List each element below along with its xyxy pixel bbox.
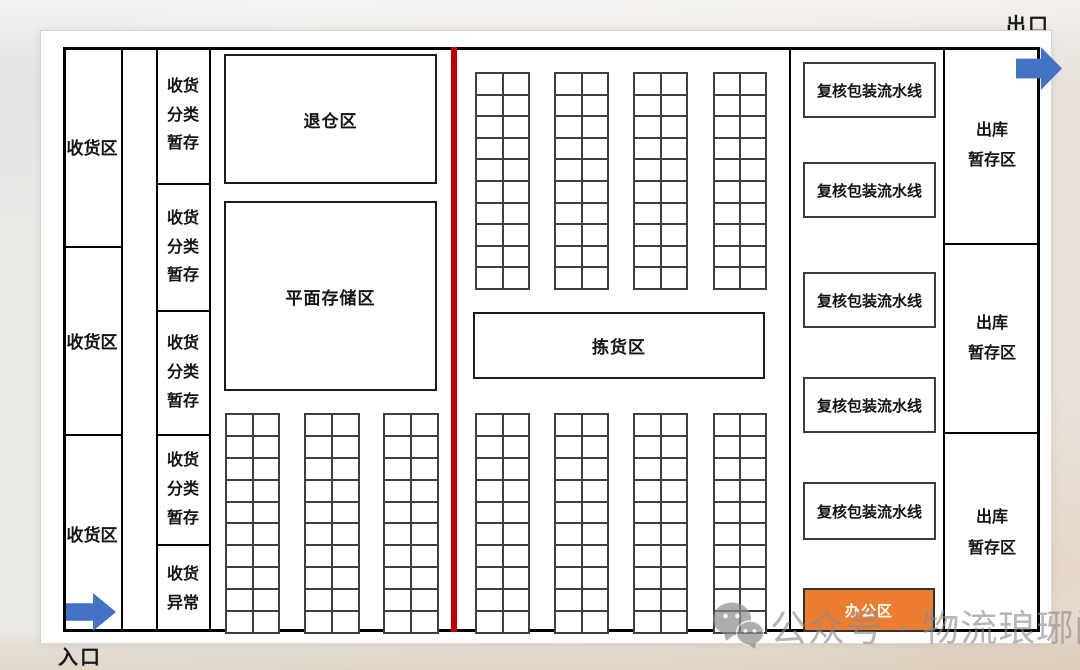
rack-cell bbox=[661, 159, 688, 181]
rack-cell bbox=[661, 203, 688, 225]
rack-cell bbox=[253, 414, 280, 436]
rack-cell bbox=[661, 611, 688, 633]
rack-cell bbox=[384, 458, 411, 480]
zone-receiving-1: 收货区 bbox=[63, 47, 121, 246]
rack-cell bbox=[661, 246, 688, 268]
rack-cell bbox=[503, 246, 530, 268]
rack-cell bbox=[714, 436, 740, 458]
rack-cell bbox=[740, 523, 766, 545]
rack-cell bbox=[226, 611, 253, 633]
rack-cell bbox=[253, 567, 280, 589]
rack-cell bbox=[714, 545, 740, 567]
rack-cell bbox=[582, 436, 609, 458]
rack-cell bbox=[305, 523, 332, 545]
rack-cell bbox=[476, 181, 503, 203]
rack-cell bbox=[226, 567, 253, 589]
rack-cell bbox=[305, 480, 332, 502]
rack-cell bbox=[582, 246, 609, 268]
rack-cell bbox=[740, 545, 766, 567]
rack-cell bbox=[582, 589, 609, 611]
rack-cell bbox=[582, 523, 609, 545]
rack-left-2 bbox=[304, 413, 360, 634]
zone-sorting-1: 收货 分类 暂存 bbox=[157, 47, 209, 183]
rack-cell bbox=[634, 73, 661, 95]
rack-cell bbox=[226, 523, 253, 545]
rack-cell bbox=[714, 267, 740, 289]
rack-cell bbox=[661, 95, 688, 117]
rack-cell bbox=[714, 589, 740, 611]
rack-cell bbox=[555, 267, 582, 289]
rack-cell bbox=[476, 138, 503, 160]
rack-cell bbox=[740, 159, 766, 181]
rack-left-3 bbox=[383, 413, 439, 634]
rack-cell bbox=[661, 138, 688, 160]
zone-packing-line-2: 复核包装流水线 bbox=[803, 162, 936, 218]
rack-cell bbox=[740, 181, 766, 203]
rack-cell bbox=[582, 545, 609, 567]
rack-cell bbox=[226, 436, 253, 458]
rack-cell bbox=[582, 567, 609, 589]
rack-cell bbox=[582, 611, 609, 633]
rack-cell bbox=[582, 458, 609, 480]
zone-return-warehouse: 退仓区 bbox=[224, 54, 437, 184]
rack-cell bbox=[582, 502, 609, 524]
rack-cell bbox=[634, 611, 661, 633]
rack-cell bbox=[661, 567, 688, 589]
rack-midbottom-3 bbox=[633, 413, 688, 634]
rack-cell bbox=[384, 545, 411, 567]
wall-receiving-right bbox=[121, 47, 123, 632]
rack-cell bbox=[503, 502, 530, 524]
rack-cell bbox=[740, 95, 766, 117]
rack-cell bbox=[740, 116, 766, 138]
rack-cell bbox=[555, 224, 582, 246]
rack-cell bbox=[503, 267, 530, 289]
red-divider-line bbox=[451, 47, 457, 632]
rack-cell bbox=[411, 502, 438, 524]
zone-outbound-2: 出库 暂存区 bbox=[944, 244, 1040, 432]
rack-cell bbox=[582, 203, 609, 225]
rack-cell bbox=[714, 95, 740, 117]
zone-receiving-2: 收货区 bbox=[63, 247, 121, 434]
rack-cell bbox=[714, 73, 740, 95]
rack-cell bbox=[634, 138, 661, 160]
rack-cell bbox=[740, 414, 766, 436]
rack-cell bbox=[226, 458, 253, 480]
rack-midtop-1 bbox=[475, 72, 530, 290]
rack-cell bbox=[332, 480, 359, 502]
rack-cell bbox=[555, 480, 582, 502]
rack-cell bbox=[503, 159, 530, 181]
zone-packing-line-5: 复核包装流水线 bbox=[803, 482, 936, 540]
zone-sorting-2: 收货 分类 暂存 bbox=[157, 184, 209, 310]
rack-cell bbox=[476, 502, 503, 524]
rack-cell bbox=[476, 116, 503, 138]
rack-cell bbox=[476, 73, 503, 95]
rack-cell bbox=[476, 589, 503, 611]
rack-cell bbox=[661, 480, 688, 502]
rack-cell bbox=[740, 246, 766, 268]
rack-cell bbox=[555, 116, 582, 138]
rack-cell bbox=[384, 502, 411, 524]
rack-cell bbox=[582, 414, 609, 436]
rack-cell bbox=[503, 138, 530, 160]
rack-cell bbox=[476, 436, 503, 458]
rack-cell bbox=[634, 502, 661, 524]
rack-cell bbox=[714, 203, 740, 225]
rack-cell bbox=[740, 436, 766, 458]
rack-cell bbox=[582, 159, 609, 181]
rack-cell bbox=[714, 159, 740, 181]
rack-cell bbox=[305, 567, 332, 589]
rack-cell bbox=[661, 502, 688, 524]
rack-cell bbox=[476, 480, 503, 502]
rack-cell bbox=[253, 458, 280, 480]
rack-cell bbox=[740, 458, 766, 480]
zone-packing-line-3: 复核包装流水线 bbox=[803, 272, 936, 328]
rack-cell bbox=[634, 203, 661, 225]
zone-outbound-3: 出库 暂存区 bbox=[944, 433, 1040, 632]
rack-cell bbox=[555, 73, 582, 95]
rack-cell bbox=[503, 480, 530, 502]
rack-cell bbox=[305, 436, 332, 458]
rack-cell bbox=[634, 224, 661, 246]
rack-cell bbox=[714, 523, 740, 545]
rack-cell bbox=[661, 458, 688, 480]
rack-cell bbox=[476, 458, 503, 480]
rack-cell bbox=[476, 203, 503, 225]
rack-cell bbox=[253, 611, 280, 633]
rack-cell bbox=[714, 611, 740, 633]
rack-cell bbox=[740, 502, 766, 524]
rack-cell bbox=[740, 267, 766, 289]
rack-cell bbox=[555, 203, 582, 225]
rack-cell bbox=[332, 589, 359, 611]
rack-cell bbox=[661, 589, 688, 611]
rack-cell bbox=[582, 267, 609, 289]
rack-cell bbox=[634, 181, 661, 203]
rack-cell bbox=[740, 611, 766, 633]
rack-cell bbox=[555, 181, 582, 203]
rack-cell bbox=[714, 181, 740, 203]
rack-cell bbox=[740, 73, 766, 95]
rack-cell bbox=[714, 502, 740, 524]
rack-cell bbox=[332, 611, 359, 633]
rack-cell bbox=[332, 567, 359, 589]
zone-flat-storage: 平面存储区 bbox=[224, 201, 437, 391]
rack-cell bbox=[503, 611, 530, 633]
rack-cell bbox=[411, 436, 438, 458]
rack-cell bbox=[582, 181, 609, 203]
rack-cell bbox=[503, 567, 530, 589]
rack-cell bbox=[555, 159, 582, 181]
rack-cell bbox=[634, 414, 661, 436]
zone-sorting-4: 收货 分类 暂存 bbox=[157, 435, 209, 544]
rack-cell bbox=[555, 414, 582, 436]
rack-cell bbox=[384, 611, 411, 633]
rack-cell bbox=[555, 523, 582, 545]
rack-cell bbox=[582, 224, 609, 246]
rack-cell bbox=[476, 159, 503, 181]
rack-midbottom-2 bbox=[554, 413, 609, 634]
rack-cell bbox=[661, 181, 688, 203]
zone-office: 办公区 bbox=[803, 588, 935, 632]
rack-cell bbox=[411, 480, 438, 502]
rack-cell bbox=[634, 523, 661, 545]
rack-cell bbox=[305, 589, 332, 611]
rack-cell bbox=[714, 116, 740, 138]
rack-cell bbox=[226, 502, 253, 524]
rack-cell bbox=[555, 567, 582, 589]
rack-cell bbox=[555, 246, 582, 268]
rack-cell bbox=[476, 224, 503, 246]
rack-cell bbox=[384, 567, 411, 589]
rack-cell bbox=[661, 224, 688, 246]
rack-cell bbox=[332, 502, 359, 524]
rack-cell bbox=[634, 545, 661, 567]
rack-cell bbox=[476, 523, 503, 545]
rack-cell bbox=[226, 589, 253, 611]
rack-cell bbox=[226, 545, 253, 567]
rack-cell bbox=[411, 414, 438, 436]
rack-cell bbox=[476, 267, 503, 289]
rack-cell bbox=[411, 545, 438, 567]
rack-cell bbox=[253, 502, 280, 524]
rack-cell bbox=[503, 436, 530, 458]
rack-cell bbox=[332, 523, 359, 545]
rack-cell bbox=[332, 545, 359, 567]
rack-cell bbox=[411, 458, 438, 480]
rack-cell bbox=[740, 224, 766, 246]
wall-packing-left bbox=[789, 47, 791, 632]
rack-cell bbox=[714, 480, 740, 502]
rack-cell bbox=[476, 414, 503, 436]
rack-cell bbox=[582, 116, 609, 138]
rack-cell bbox=[661, 116, 688, 138]
rack-cell bbox=[634, 267, 661, 289]
rack-cell bbox=[305, 545, 332, 567]
rack-cell bbox=[476, 567, 503, 589]
rack-cell bbox=[555, 458, 582, 480]
rack-cell bbox=[384, 480, 411, 502]
rack-cell bbox=[332, 436, 359, 458]
rack-cell bbox=[714, 138, 740, 160]
rack-cell bbox=[253, 480, 280, 502]
rack-cell bbox=[661, 267, 688, 289]
zone-packing-line-1: 复核包装流水线 bbox=[803, 62, 936, 118]
rack-cell bbox=[555, 589, 582, 611]
rack-cell bbox=[332, 414, 359, 436]
rack-cell bbox=[503, 203, 530, 225]
rack-cell bbox=[661, 523, 688, 545]
rack-cell bbox=[253, 436, 280, 458]
rack-midtop-4 bbox=[713, 72, 767, 290]
rack-cell bbox=[661, 414, 688, 436]
rack-cell bbox=[411, 523, 438, 545]
entrance-label: 入口 bbox=[58, 641, 102, 670]
rack-cell bbox=[332, 458, 359, 480]
rack-cell bbox=[411, 567, 438, 589]
rack-cell bbox=[411, 611, 438, 633]
rack-cell bbox=[384, 523, 411, 545]
rack-cell bbox=[661, 436, 688, 458]
rack-cell bbox=[503, 181, 530, 203]
rack-cell bbox=[226, 480, 253, 502]
rack-cell bbox=[661, 73, 688, 95]
rack-cell bbox=[503, 116, 530, 138]
rack-cell bbox=[714, 567, 740, 589]
rack-cell bbox=[740, 203, 766, 225]
rack-cell bbox=[476, 611, 503, 633]
rack-cell bbox=[555, 436, 582, 458]
rack-cell bbox=[714, 414, 740, 436]
rack-cell bbox=[740, 589, 766, 611]
rack-cell bbox=[740, 567, 766, 589]
rack-cell bbox=[634, 159, 661, 181]
rack-cell bbox=[503, 73, 530, 95]
rack-midbottom-1 bbox=[475, 413, 530, 634]
rack-cell bbox=[740, 480, 766, 502]
rack-cell bbox=[634, 589, 661, 611]
rack-cell bbox=[582, 95, 609, 117]
rack-midbottom-4 bbox=[713, 413, 767, 634]
rack-cell bbox=[634, 246, 661, 268]
rack-cell bbox=[634, 436, 661, 458]
rack-cell bbox=[384, 436, 411, 458]
rack-cell bbox=[661, 545, 688, 567]
rack-midtop-2 bbox=[554, 72, 609, 290]
rack-cell bbox=[634, 480, 661, 502]
rack-cell bbox=[305, 611, 332, 633]
rack-cell bbox=[384, 414, 411, 436]
rack-cell bbox=[305, 458, 332, 480]
rack-cell bbox=[634, 95, 661, 117]
rack-cell bbox=[582, 138, 609, 160]
zone-sorting-3: 收货 分类 暂存 bbox=[157, 311, 209, 434]
rack-cell bbox=[384, 589, 411, 611]
rack-cell bbox=[634, 567, 661, 589]
rack-cell bbox=[555, 502, 582, 524]
rack-cell bbox=[476, 246, 503, 268]
rack-cell bbox=[503, 523, 530, 545]
rack-cell bbox=[714, 224, 740, 246]
rack-cell bbox=[634, 116, 661, 138]
rack-cell bbox=[503, 414, 530, 436]
rack-cell bbox=[503, 458, 530, 480]
rack-cell bbox=[714, 458, 740, 480]
rack-cell bbox=[740, 138, 766, 160]
rack-cell bbox=[555, 545, 582, 567]
zone-receiving-abnormal: 收货 异常 bbox=[157, 545, 209, 632]
zone-picking: 拣货区 bbox=[473, 312, 765, 379]
rack-cell bbox=[476, 545, 503, 567]
rack-cell bbox=[305, 414, 332, 436]
rack-cell bbox=[582, 480, 609, 502]
rack-cell bbox=[582, 73, 609, 95]
rack-cell bbox=[226, 414, 253, 436]
rack-cell bbox=[555, 95, 582, 117]
rack-cell bbox=[503, 589, 530, 611]
rack-cell bbox=[503, 95, 530, 117]
rack-cell bbox=[253, 545, 280, 567]
rack-cell bbox=[714, 246, 740, 268]
rack-cell bbox=[503, 545, 530, 567]
rack-cell bbox=[634, 458, 661, 480]
rack-cell bbox=[476, 95, 503, 117]
rack-cell bbox=[253, 523, 280, 545]
rack-cell bbox=[555, 138, 582, 160]
zone-packing-line-4: 复核包装流水线 bbox=[803, 377, 936, 433]
rack-cell bbox=[411, 589, 438, 611]
zone-receiving-3: 收货区 bbox=[63, 435, 121, 632]
rack-cell bbox=[503, 224, 530, 246]
rack-cell bbox=[305, 502, 332, 524]
rack-left-1 bbox=[225, 413, 280, 634]
rack-midtop-3 bbox=[633, 72, 688, 290]
rack-cell bbox=[555, 611, 582, 633]
rack-cell bbox=[253, 589, 280, 611]
